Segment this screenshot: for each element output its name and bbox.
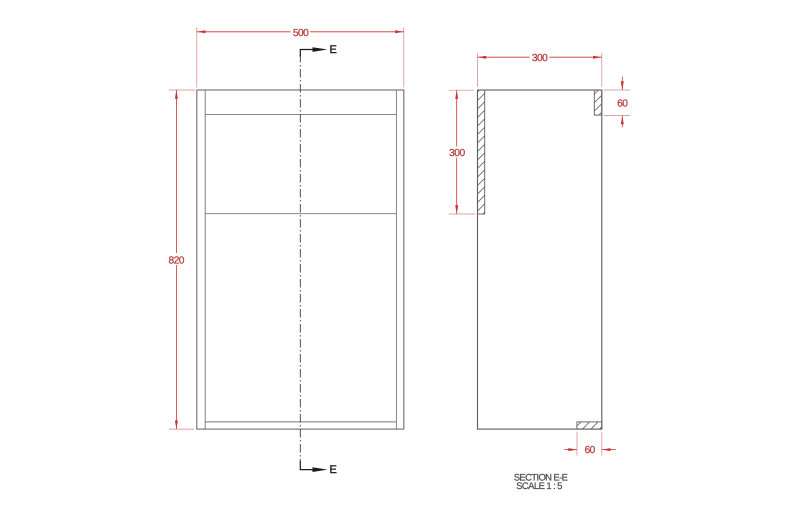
- svg-text:820: 820: [168, 255, 184, 266]
- svg-text:300: 300: [449, 148, 465, 159]
- svg-text:SCALE 1 : 5: SCALE 1 : 5: [516, 481, 562, 492]
- svg-text:60: 60: [585, 445, 596, 456]
- svg-text:300: 300: [532, 53, 548, 64]
- svg-text:E: E: [330, 464, 337, 476]
- svg-text:60: 60: [617, 99, 628, 110]
- svg-text:E: E: [330, 44, 337, 56]
- svg-text:500: 500: [293, 28, 309, 39]
